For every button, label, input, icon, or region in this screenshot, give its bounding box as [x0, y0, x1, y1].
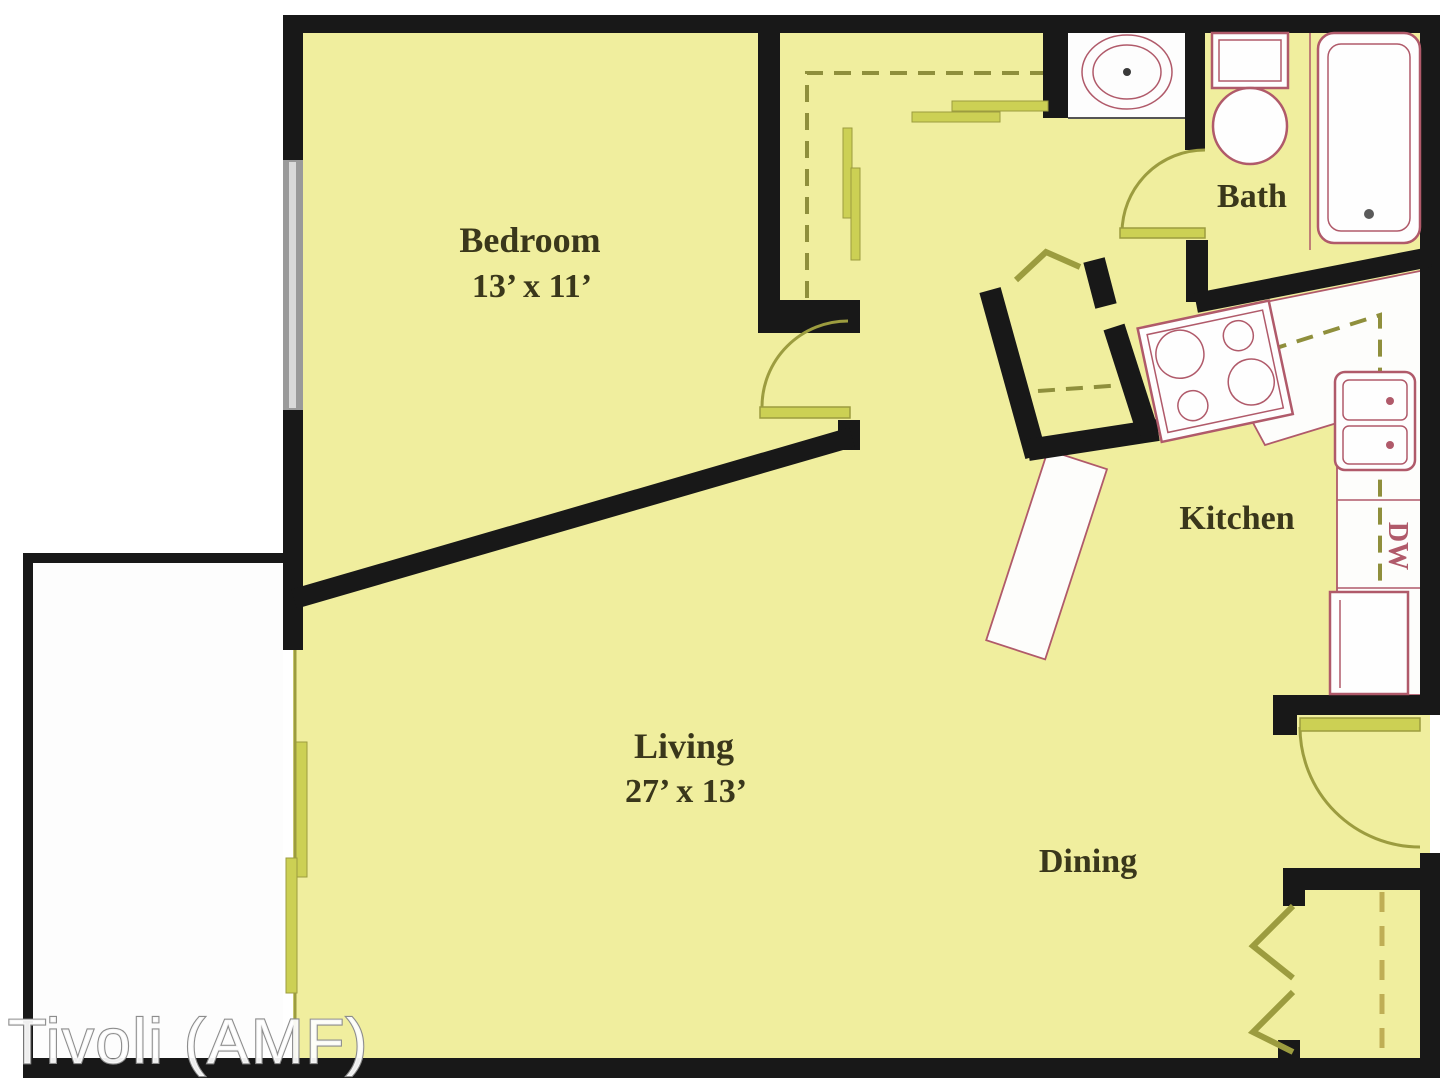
room-label-bedroom: Bedroom [459, 220, 600, 260]
entry-closet-top-wall [1283, 868, 1440, 890]
patio-floor [33, 563, 283, 1058]
toilet-icon [1212, 33, 1288, 164]
hall-closet-slide-panel-2 [952, 101, 1048, 111]
patio-left-wall [23, 553, 33, 1068]
refrigerator-icon [1330, 592, 1408, 694]
room-label-living: Living [634, 726, 734, 766]
floor-plan-drawing: DW Bedroom 13’ x 11’ Living 27’ x 13’ Ba… [0, 0, 1451, 1080]
bedroom-right-wall [758, 33, 780, 300]
bath-door-leaf [1120, 228, 1205, 238]
kitchen-bottom-wall-stub [1273, 695, 1297, 735]
utility-upper-stub [1094, 260, 1106, 306]
bath-left-wall [1185, 28, 1205, 150]
patio-top-wall [23, 553, 293, 563]
room-label-bath: Bath [1217, 178, 1287, 215]
window-glass-line [289, 162, 296, 408]
hall-closet-slide-panel-1 [912, 112, 1000, 122]
sliding-door-panel-2 [286, 858, 297, 993]
double-sink-icon [1335, 372, 1415, 470]
hall-closet-slide-panel-4 [851, 168, 860, 260]
room-dims-bedroom: 13’ x 11’ [472, 268, 592, 305]
right-exterior-wall-upper [1420, 15, 1440, 715]
entry-closet-top-stub [1283, 868, 1305, 906]
floor-plan-canvas: DW Bedroom 13’ x 11’ Living 27’ x 13’ Ba… [0, 0, 1451, 1080]
room-label-dining: Dining [1039, 843, 1137, 880]
top-exterior-wall [283, 15, 1440, 33]
sliding-door-panel-1 [296, 742, 307, 877]
watermark-text: Tivoli (AMF) [8, 1007, 369, 1077]
entry-door-leaf [1300, 718, 1420, 731]
bedroom-wall-cap [758, 300, 860, 333]
bathtub-icon [1310, 33, 1420, 250]
room-dims-living: 27’ x 13’ [625, 773, 747, 810]
room-label-kitchen: Kitchen [1179, 500, 1294, 537]
left-wall-mid [283, 410, 303, 650]
bedroom-door-leaf [760, 407, 850, 418]
dishwasher-label: DW [1382, 522, 1413, 570]
left-wall-upper [283, 15, 303, 160]
